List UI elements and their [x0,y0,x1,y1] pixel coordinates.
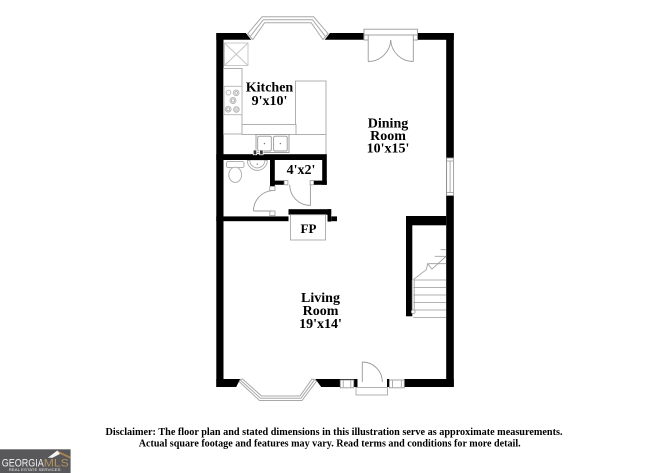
svg-text:9'x10': 9'x10' [252,94,288,109]
svg-text:FP: FP [301,221,317,236]
svg-text:REAL ESTATE SERVICES: REAL ESTATE SERVICES [9,468,62,472]
svg-text:19'x14': 19'x14' [299,317,342,332]
svg-text:Disclaimer: The floor plan and: Disclaimer: The floor plan and stated di… [106,427,563,438]
svg-text:4'x2': 4'x2' [287,163,316,178]
svg-text:10'x15': 10'x15' [367,142,410,157]
svg-text:Actual square footage and feat: Actual square footage and features may v… [139,438,521,449]
